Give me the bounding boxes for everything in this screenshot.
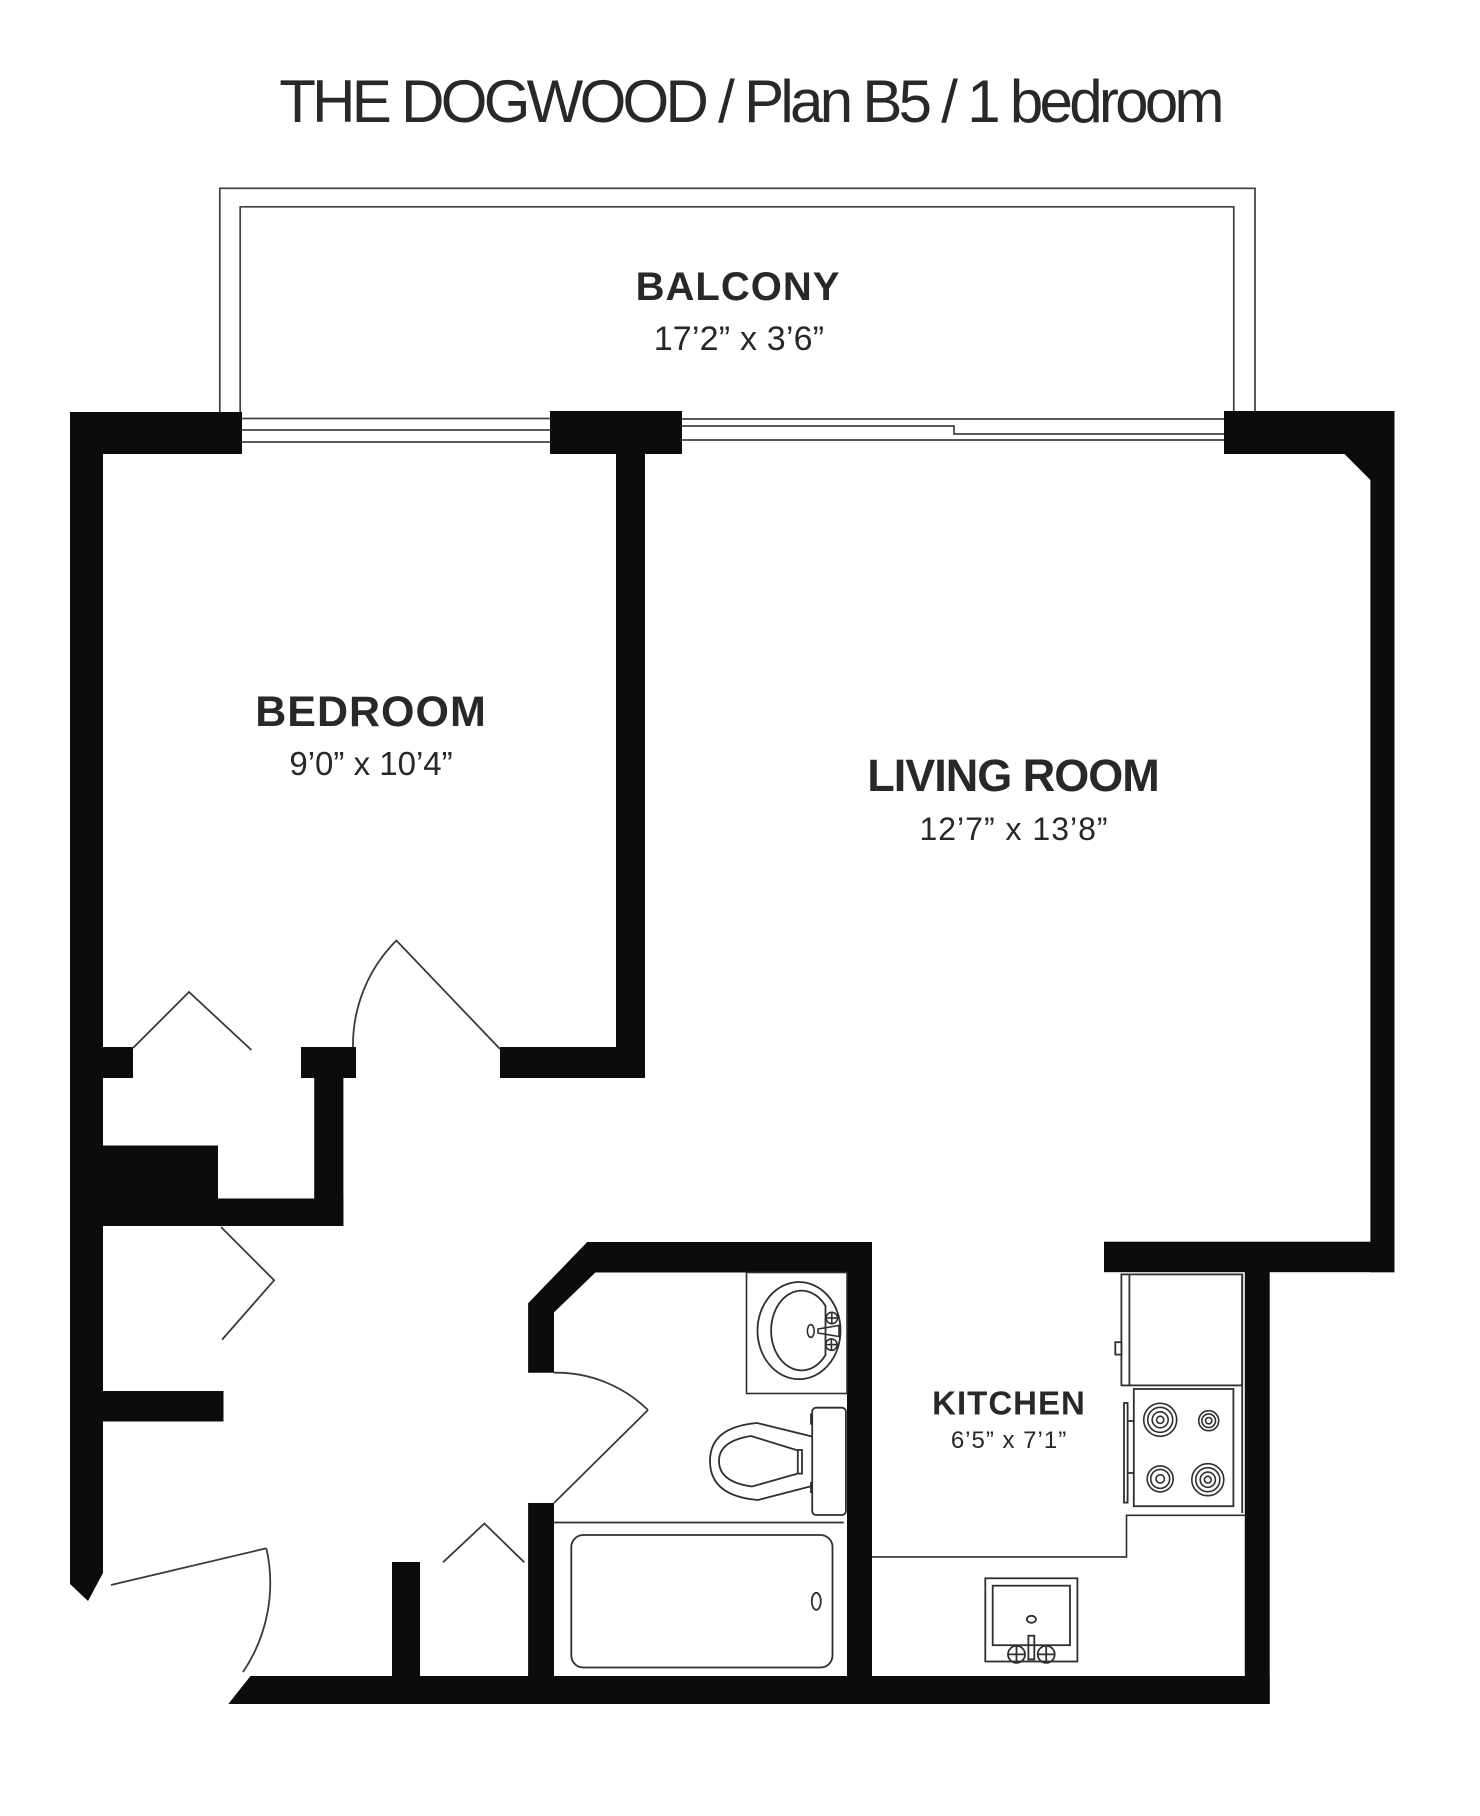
svg-text:17’2” x 3’6”: 17’2” x 3’6” (654, 320, 825, 358)
svg-text:BEDROOM: BEDROOM (255, 688, 487, 736)
svg-text:12’7” x 13’8”: 12’7” x 13’8” (919, 811, 1108, 847)
svg-text:9’0” x 10’4”: 9’0” x 10’4” (289, 745, 452, 782)
svg-text:6’5” x 7’1”: 6’5” x 7’1” (951, 1427, 1067, 1454)
svg-text:BALCONY: BALCONY (636, 265, 841, 309)
svg-text:THE DOGWOOD / Plan B5 / 1 bedr: THE DOGWOOD / Plan B5 / 1 bedroom (279, 68, 1221, 135)
svg-text:KITCHEN: KITCHEN (932, 1385, 1086, 1422)
svg-text:LIVING ROOM: LIVING ROOM (867, 750, 1159, 801)
